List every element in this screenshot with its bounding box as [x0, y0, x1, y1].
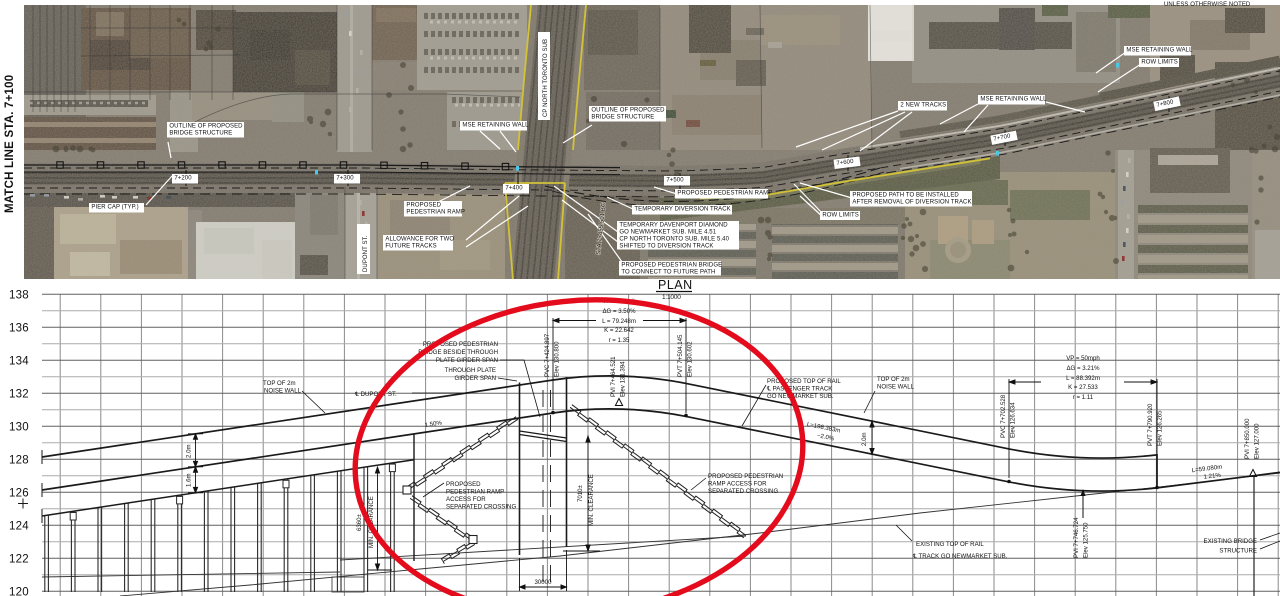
svg-text:7+300: 7+300 [336, 176, 354, 182]
svg-text:RAMP ACCESS FOR: RAMP ACCESS FOR [708, 481, 767, 488]
svg-text:r = 1.11: r = 1.11 [1073, 394, 1094, 401]
svg-text:L = 79.248m: L = 79.248m [602, 318, 636, 325]
svg-text:EXISTING BRIDGE: EXISTING BRIDGE [1204, 538, 1258, 545]
svg-text:30000: 30000 [535, 579, 553, 586]
svg-text:TEMPORARY DAVENPORT DIAMOND: TEMPORARY DAVENPORT DIAMOND [619, 223, 728, 229]
svg-text:Elev 130.800: Elev 130.800 [554, 341, 561, 377]
svg-text:PVC 7+424.897: PVC 7+424.897 [544, 333, 551, 377]
svg-text:℄ TRACK GO NEWMARKET SUB.: ℄ TRACK GO NEWMARKET SUB. [912, 553, 1008, 560]
svg-text:PROPOSED PEDESTRIAN: PROPOSED PEDESTRIAN [708, 473, 783, 480]
svg-text:7+400: 7+400 [505, 186, 523, 192]
svg-text:PROPOSED PEDESTRIAN BRIDGE: PROPOSED PEDESTRIAN BRIDGE [621, 263, 722, 269]
svg-text:128: 128 [9, 454, 29, 466]
svg-text:1:1000: 1:1000 [662, 294, 681, 301]
svg-text:SHIFTED TO DIVERSION TRACK: SHIFTED TO DIVERSION TRACK [619, 244, 713, 250]
svg-text:124: 124 [9, 520, 29, 532]
svg-text:122: 122 [9, 553, 29, 565]
svg-text:PEDESTRIAN RAMP: PEDESTRIAN RAMP [406, 210, 465, 216]
svg-text:MSE RETAINING WALL: MSE RETAINING WALL [462, 123, 529, 129]
svg-text:TOP OF 2m: TOP OF 2m [263, 380, 296, 387]
svg-text:MSE RETAINING WALL: MSE RETAINING WALL [980, 97, 1047, 103]
svg-text:GIRDER SPAN: GIRDER SPAN [454, 375, 496, 382]
svg-text:132: 132 [9, 388, 29, 400]
svg-text:PROPOSED: PROPOSED [446, 481, 481, 488]
svg-text:PVT 7+790.920: PVT 7+790.920 [1147, 403, 1154, 446]
svg-text:126: 126 [9, 487, 29, 499]
svg-text:℄ PASSENGER TRACK: ℄ PASSENGER TRACK [766, 386, 832, 393]
svg-text:138: 138 [9, 289, 29, 301]
svg-text:134: 134 [9, 355, 29, 367]
svg-text:7010±: 7010± [577, 484, 584, 502]
svg-text:Elev 126.265: Elev 126.265 [1157, 410, 1164, 446]
svg-text:PEDESTRIAN RAMP: PEDESTRIAN RAMP [446, 489, 504, 496]
svg-text:STRUCTURE: STRUCTURE [1219, 548, 1257, 555]
svg-text:ALLOWANCE FOR TWO: ALLOWANCE FOR TWO [385, 237, 454, 243]
svg-text:VP = 50mph: VP = 50mph [1066, 355, 1100, 362]
svg-text:r = 1.35: r = 1.35 [609, 337, 630, 344]
svg-text:Elev 126.634: Elev 126.634 [1010, 402, 1017, 438]
svg-text:7+200: 7+200 [174, 176, 192, 182]
svg-text:Elev 130.602: Elev 130.602 [687, 341, 694, 377]
svg-text:PVI 7+746.724: PVI 7+746.724 [1073, 517, 1080, 558]
svg-text:Elev 125.750: Elev 125.750 [1083, 522, 1090, 558]
svg-text:2 NEW TRACKS: 2 NEW TRACKS [900, 103, 946, 109]
svg-text:NOISE WALL: NOISE WALL [264, 388, 302, 395]
svg-text:6360±: 6360± [356, 513, 363, 531]
svg-text:PROPOSED: PROPOSED [406, 203, 441, 209]
svg-text:ROW LIMITS: ROW LIMITS [1141, 60, 1177, 66]
svg-text:OUTLINE OF PROPOSED: OUTLINE OF PROPOSED [591, 108, 665, 114]
svg-text:SEPARATED CROSSING: SEPARATED CROSSING [708, 488, 778, 495]
svg-text:TEMPORARY DIVERSION TRACK: TEMPORARY DIVERSION TRACK [634, 207, 730, 213]
svg-text:PLATE GIRDER SPAN: PLATE GIRDER SPAN [436, 357, 498, 364]
svg-text:L = 88.392m: L = 88.392m [1066, 375, 1100, 382]
svg-text:GO NEWMARKET SUB.: GO NEWMARKET SUB. [767, 393, 834, 400]
svg-text:7+500: 7+500 [666, 178, 684, 184]
svg-text:K = 22.642: K = 22.642 [604, 327, 634, 334]
svg-text:1.6m: 1.6m [186, 473, 193, 487]
svg-text:BRIDGE STRUCTURE: BRIDGE STRUCTURE [591, 115, 654, 121]
svg-text:UNLESS OTHERWISE NOTED: UNLESS OTHERWISE NOTED [1164, 2, 1251, 8]
svg-text:K = 27.533: K = 27.533 [1068, 384, 1098, 391]
svg-text:PVC 7+702.528: PVC 7+702.528 [1000, 394, 1007, 438]
svg-text:Elev 127.000: Elev 127.000 [1254, 423, 1261, 459]
svg-text:130: 130 [9, 421, 29, 433]
svg-text:MATCH LINE STA. 7+100: MATCH LINE STA. 7+100 [4, 75, 16, 213]
svg-text:TO CONNECT TO FUTURE PATH: TO CONNECT TO FUTURE PATH [621, 270, 715, 276]
svg-text:2.0m: 2.0m [186, 444, 193, 458]
svg-text:DUPONT ST.: DUPONT ST. [363, 235, 369, 272]
svg-text:PROPOSED PEDESTRIAN RAMP: PROPOSED PEDESTRIAN RAMP [677, 191, 772, 197]
svg-text:TOP OF 2m: TOP OF 2m [877, 376, 910, 383]
svg-text:PIER CAP (TYP.): PIER CAP (TYP.) [91, 205, 138, 211]
svg-text:THROUGH PLATE: THROUGH PLATE [445, 367, 496, 374]
svg-text:PVT 7+504.145: PVT 7+504.145 [677, 334, 684, 377]
svg-text:GO NEWMARKET SUB. MILE 4.51: GO NEWMARKET SUB. MILE 4.51 [619, 230, 716, 236]
svg-text:AFTER REMOVAL OF DIVERSION TRA: AFTER REMOVAL OF DIVERSION TRACK [852, 200, 971, 206]
svg-text:CP NORTH TORONTO SUB: CP NORTH TORONTO SUB [543, 39, 549, 117]
svg-text:OUTLINE OF PROPOSED: OUTLINE OF PROPOSED [169, 124, 243, 130]
svg-text:NOISE WALL: NOISE WALL [877, 384, 915, 391]
svg-text:BRIDGE STRUCTURE: BRIDGE STRUCTURE [169, 131, 232, 137]
svg-text:CP NORTH TORONTO SUB. MILE 5.4: CP NORTH TORONTO SUB. MILE 5.40 [619, 237, 729, 243]
svg-text:℄ DUPONT ST.: ℄ DUPONT ST. [354, 391, 397, 398]
svg-text:PVI 7+850.000: PVI 7+850.000 [1244, 418, 1251, 459]
svg-text:ROW LIMITS: ROW LIMITS [822, 213, 858, 219]
svg-text:MIN. CLEARANCE: MIN. CLEARANCE [588, 474, 595, 526]
svg-text:ACCESS FOR: ACCESS FOR [446, 496, 486, 503]
svg-text:120: 120 [9, 586, 29, 596]
svg-text:SEPARATED CROSSING: SEPARATED CROSSING [446, 504, 516, 511]
svg-text:FUTURE TRACKS: FUTURE TRACKS [385, 244, 436, 250]
svg-text:MSE RETAINING WALL: MSE RETAINING WALL [1126, 48, 1193, 54]
svg-text:EXISTING TOP OF RAIL: EXISTING TOP OF RAIL [916, 541, 984, 548]
svg-text:ΔG = 3.50%: ΔG = 3.50% [602, 308, 636, 315]
svg-text:136: 136 [9, 322, 29, 334]
svg-text:PROPOSED PATH TO BE INSTALLED: PROPOSED PATH TO BE INSTALLED [852, 193, 959, 199]
svg-text:PLAN: PLAN [658, 278, 693, 292]
svg-text:Elev 131.394: Elev 131.394 [620, 361, 627, 397]
svg-text:PVI 7+464.521: PVI 7+464.521 [610, 356, 617, 397]
svg-text:ΔG = 3.21%: ΔG = 3.21% [1066, 365, 1100, 372]
svg-text:2.0m: 2.0m [861, 432, 868, 446]
